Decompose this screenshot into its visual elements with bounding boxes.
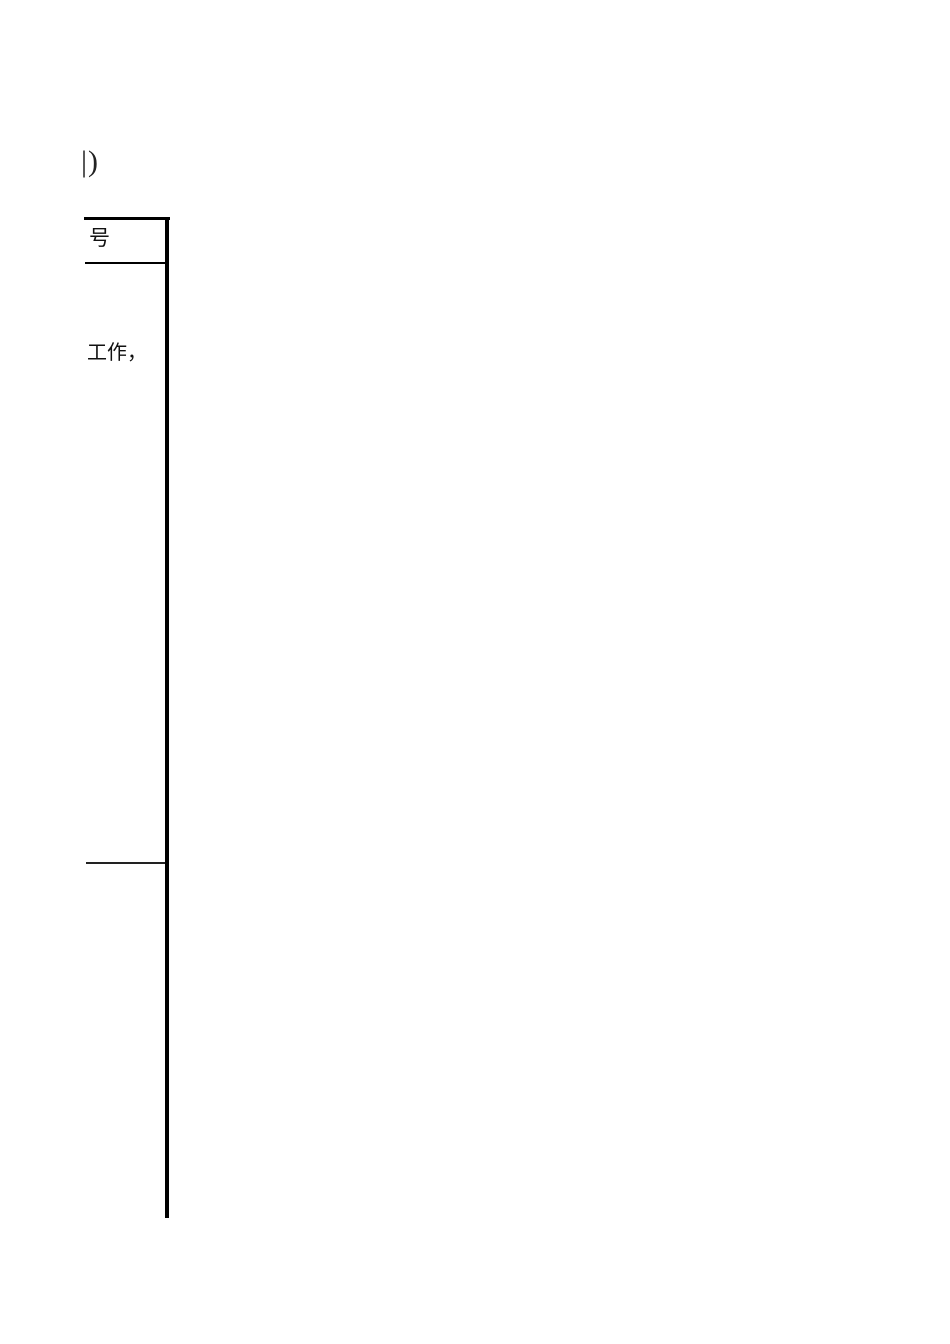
header-row-divider [85,262,165,264]
table-right-border [165,217,169,1218]
table-header-cell: 号 [89,227,110,250]
body-row-divider [86,862,165,864]
cropped-text-fragment: |) [81,147,99,177]
table-top-border [84,217,170,220]
table-body-cell: 工作， [87,342,147,364]
document-page: { "page": { "cropped_text": "|)", "table… [0,0,950,1344]
